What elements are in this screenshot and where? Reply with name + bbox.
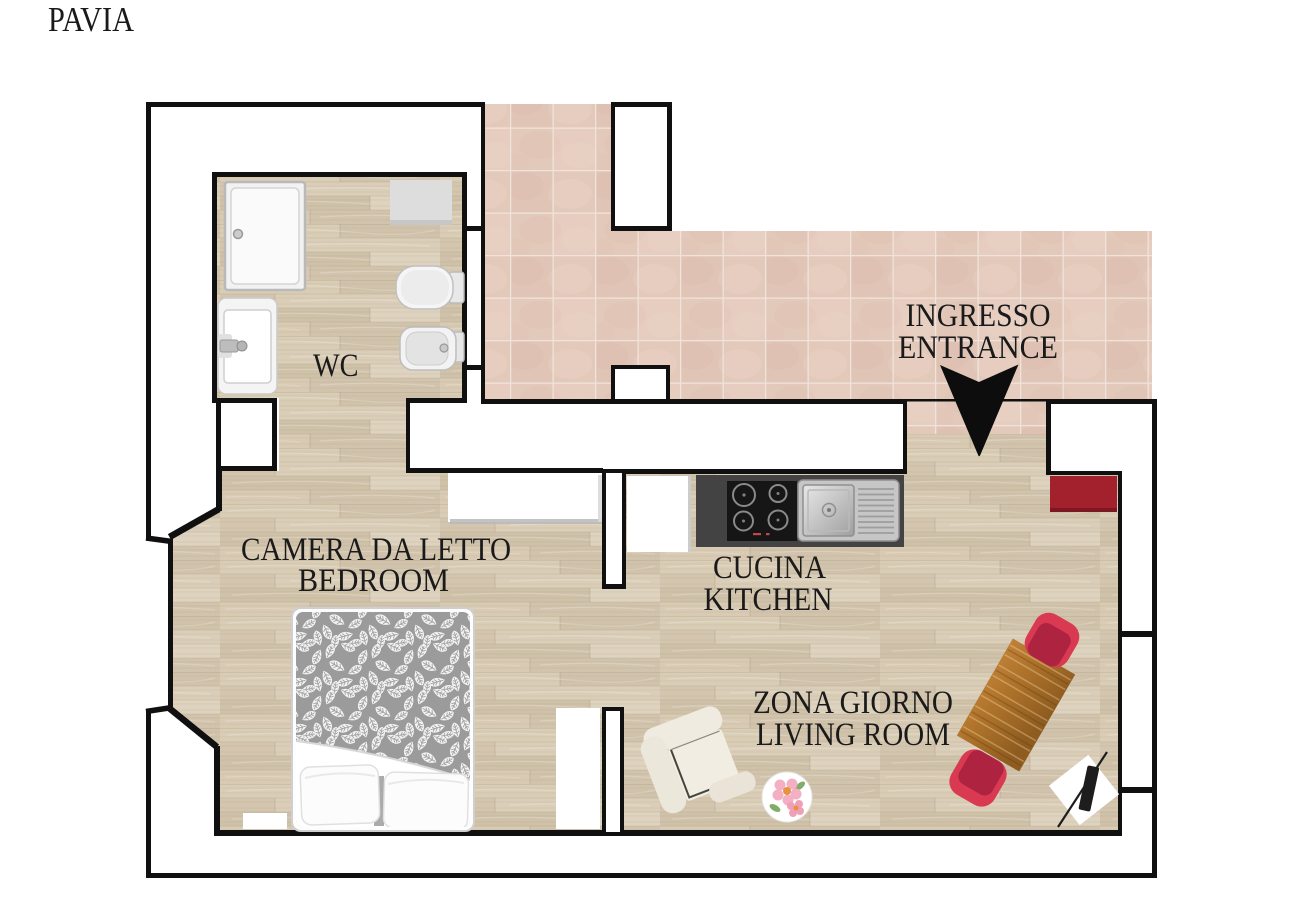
svg-text:ENTRANCE: ENTRANCE xyxy=(898,330,1058,366)
svg-text:LIVING ROOM: LIVING ROOM xyxy=(756,717,950,753)
svg-text:INGRESSO: INGRESSO xyxy=(906,298,1051,334)
svg-text:CUCINA: CUCINA xyxy=(713,550,826,586)
svg-text:WC: WC xyxy=(313,348,359,384)
svg-text:ZONA GIORNO: ZONA GIORNO xyxy=(753,685,953,721)
svg-text:PAVIA: PAVIA xyxy=(48,1,134,39)
svg-text:BEDROOM: BEDROOM xyxy=(298,563,449,599)
svg-text:KITCHEN: KITCHEN xyxy=(704,582,833,618)
